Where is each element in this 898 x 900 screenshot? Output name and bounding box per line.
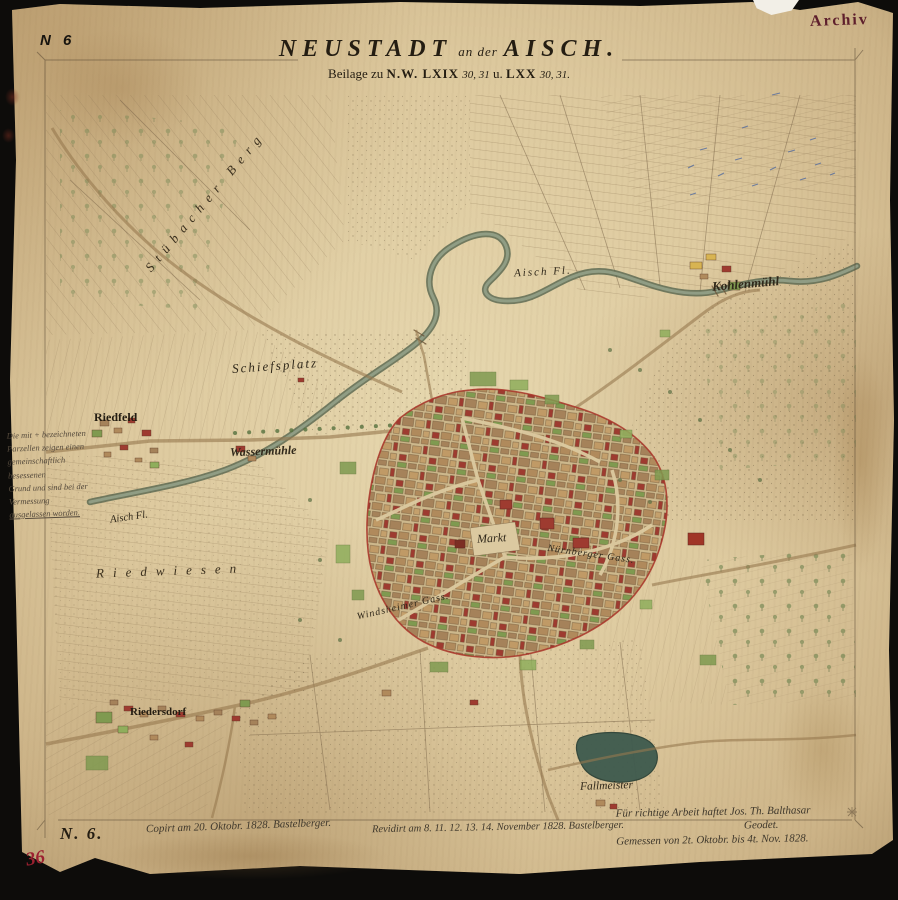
map-title-block: NEUSTADT an der AISCH. Beilage zu N.W. L… (0, 36, 898, 82)
map-label-markt: Markt (477, 530, 507, 547)
subtitle-no1: 30, 31 (462, 69, 490, 81)
sheet-number-bottom: N. 6. (60, 824, 104, 844)
map-title: NEUSTADT an der AISCH. (0, 36, 898, 63)
surveyor-line-2: Geodet. (744, 818, 811, 833)
map-artwork (0, 0, 898, 900)
subtitle-conn: u. (493, 66, 503, 81)
subtitle-ref2: LXX (506, 66, 536, 81)
margin-handwritten-note: Die mit + bezeichneten Parzellen zeigen … (6, 426, 103, 521)
subtitle-pre: Beilage zu (328, 66, 383, 81)
margin-note-line: gemeinschaftlich besessenen (7, 453, 102, 483)
red-corner-number: 36 (24, 847, 47, 872)
map-label-wassermuehle: Wassermühle (230, 443, 297, 460)
title-main: NEUSTADT (279, 36, 452, 62)
subtitle-no2: 30, 31. (540, 69, 570, 81)
map-label-riedersdorf: Riedersdorf (130, 706, 186, 718)
subtitle-ref1: N.W. LXIX (387, 66, 459, 81)
map-subtitle: Beilage zu N.W. LXIX 30, 31 u. LXX 30, 3… (0, 66, 898, 82)
map-label-fallmeister: Fallmeister (580, 779, 633, 793)
scanned-map-page: N 6 Archiv NEUSTADT an der AISCH. Beilag… (0, 0, 898, 900)
title-connector: an der (458, 44, 498, 59)
footer-note-surveyor: Für richtige Arbeit haftet Jos. Th. Balt… (616, 804, 811, 849)
title-place: AISCH. (504, 36, 619, 62)
archive-stamp: Archiv (810, 11, 869, 31)
map-label-riedfeld: Riedfeld (94, 410, 137, 425)
